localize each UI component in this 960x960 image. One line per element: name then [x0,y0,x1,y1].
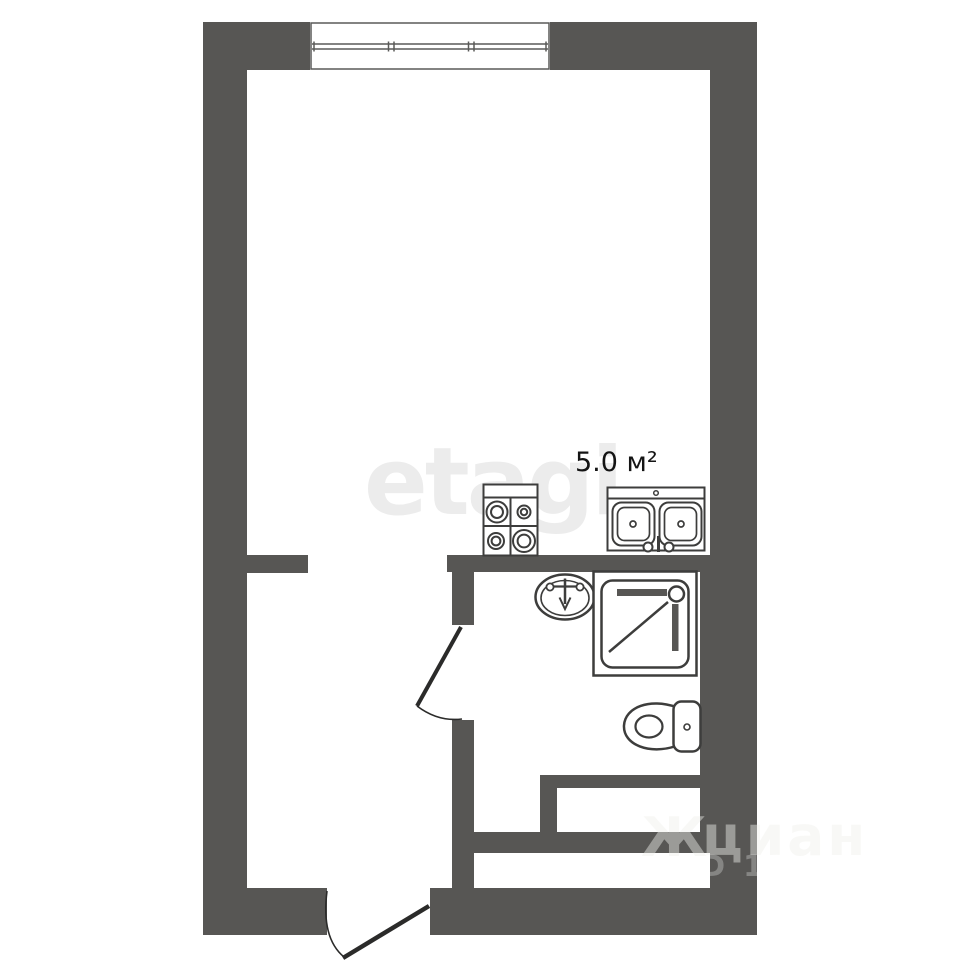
stove-icon [484,485,538,556]
interior-door-swing-arc [417,706,462,719]
entry-door-swing-arc [326,891,344,957]
wall-interior-lower [452,720,474,888]
cian-logo-watermark: Ж [641,806,707,869]
entry-door-leaf [343,906,429,958]
kitchen-sink-icon [608,488,705,553]
washbasin-icon [536,575,595,620]
wall-left [203,22,247,935]
walls [203,22,757,935]
interior-door-leaf [417,627,461,706]
wall-interior-upper [452,572,474,625]
wall-bathroom-bottom [540,775,710,788]
wall-middle-stub [247,555,308,573]
wall-bottom-left [203,888,327,935]
listing-id-watermark: D 12 [701,849,792,883]
shower-icon [594,572,697,676]
interior-door [417,627,462,719]
toilet-icon [624,702,701,752]
wall-right [710,22,757,933]
window-icon [311,23,549,69]
wall-niche-jamb [540,775,557,837]
wall-bathroom-top [447,555,710,572]
floorplan-image: etagi [0,0,960,960]
entry-door [326,891,429,958]
area-label: 5.0 м² [575,447,658,478]
wall-bottom-right [430,888,757,935]
